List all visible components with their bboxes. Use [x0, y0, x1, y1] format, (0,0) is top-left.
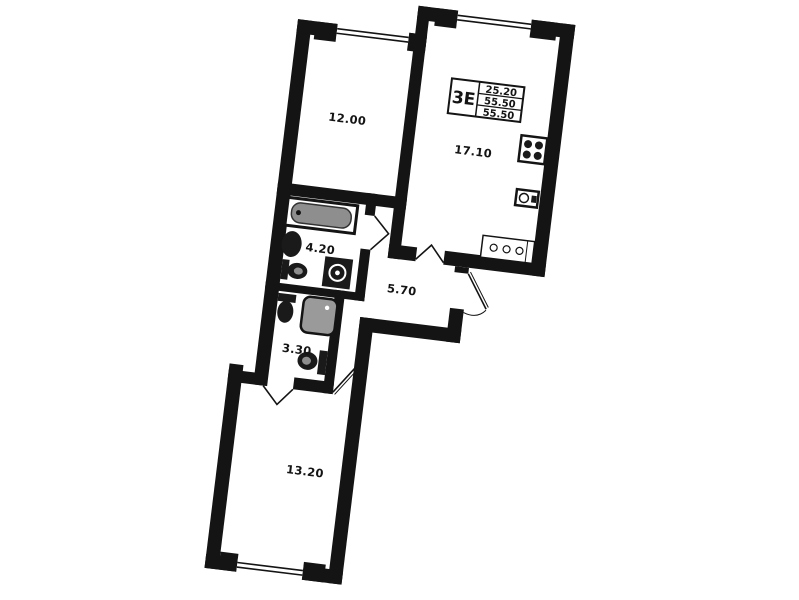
wall-kitchen-bottom-left — [388, 244, 417, 261]
wall-hall-bottom — [359, 317, 462, 343]
apartment-type-table: 3Е 25.20 55.50 55.50 — [448, 78, 525, 123]
floorplan-canvas: 3Е 25.20 55.50 55.50 12.00 17.10 4.20 5.… — [0, 0, 799, 600]
door-wc — [261, 386, 293, 407]
window-kitchen — [457, 11, 532, 34]
bathroom-toilet-icon — [280, 259, 308, 282]
bathtub — [285, 197, 358, 233]
room-label-wc-shower: 3.30 — [281, 341, 312, 359]
room-label-bedroom-top: 12.00 — [328, 110, 367, 129]
pier-kitchen-window-right — [530, 20, 558, 41]
door-kitchen-opening — [416, 243, 446, 262]
door-entrance-swing-arc — [463, 308, 486, 317]
pier-room12-window-left — [314, 21, 338, 42]
shower-tray-icon — [300, 296, 338, 336]
wc-sink-icon — [275, 293, 296, 324]
door-bathroom — [371, 216, 391, 252]
door-entrance — [463, 272, 492, 317]
washing-machine-icon — [322, 256, 353, 289]
pier-bedroom13-window-right — [302, 562, 326, 583]
room-label-kitchen-living: 17.10 — [454, 142, 493, 161]
pier-kitchen-window-left — [434, 8, 458, 29]
room-label-bathroom: 4.20 — [305, 240, 336, 258]
apartment-plan: 3Е 25.20 55.50 55.50 12.00 17.10 4.20 5.… — [204, 0, 575, 600]
wall-entrance-lower — [446, 308, 464, 343]
pier-bedroom13-window-left — [218, 552, 238, 572]
room-label-hallway: 5.70 — [386, 281, 417, 299]
kitchen-sink-icon — [515, 189, 539, 208]
room-area-labels: 12.00 17.10 4.20 5.70 3.30 13.20 — [267, 107, 495, 496]
stove-icon — [518, 135, 547, 164]
window-bedroom13 — [236, 558, 303, 580]
wall-bedroom13-left — [204, 363, 243, 569]
apartment-type-code: 3Е — [451, 88, 477, 111]
room-label-bedroom-bottom: 13.20 — [285, 462, 324, 481]
floorplan-svg: 3Е 25.20 55.50 55.50 12.00 17.10 4.20 5.… — [0, 0, 799, 600]
window-room12 — [336, 24, 409, 47]
